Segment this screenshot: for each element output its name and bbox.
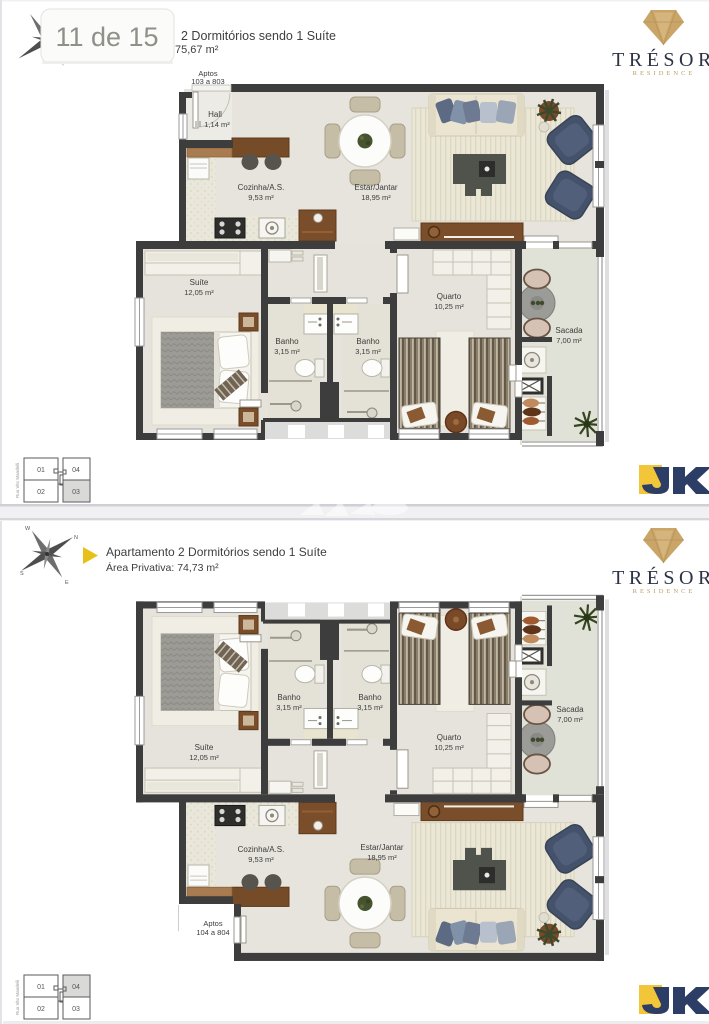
svg-text:Suíte: Suíte — [190, 278, 209, 287]
svg-text:Estar/Jantar: Estar/Jantar — [354, 183, 397, 192]
svg-text:TRÉSOR: TRÉSOR — [612, 48, 709, 71]
svg-text:Sacada: Sacada — [556, 705, 584, 714]
svg-text:Banho: Banho — [275, 337, 299, 346]
svg-text:Banho: Banho — [358, 693, 382, 702]
svg-text:3,15 m²: 3,15 m² — [276, 703, 302, 712]
svg-text:Suíte: Suíte — [195, 743, 214, 752]
svg-text:11 de 15: 11 de 15 — [55, 22, 158, 52]
svg-text:W: W — [25, 526, 31, 532]
svg-text:75,67 m²: 75,67 m² — [175, 44, 219, 56]
svg-text:03: 03 — [72, 489, 80, 496]
svg-text:9,53 m²: 9,53 m² — [248, 855, 274, 864]
svg-text:Área Privativa: 74,73 m²: Área Privativa: 74,73 m² — [106, 561, 219, 574]
svg-text:10,25 m²: 10,25 m² — [434, 302, 464, 311]
svg-text:02: 02 — [37, 1006, 45, 1013]
svg-text:10,25 m²: 10,25 m² — [434, 743, 464, 752]
svg-text:Rua Vito Mandelli: Rua Vito Mandelli — [15, 463, 20, 498]
svg-text:N: N — [74, 535, 78, 541]
svg-text:Estar/Jantar: Estar/Jantar — [360, 843, 403, 852]
svg-text:Rua Vito Mandelli: Rua Vito Mandelli — [15, 980, 20, 1015]
svg-text:7,00 m²: 7,00 m² — [557, 715, 583, 724]
svg-text:3,15 m²: 3,15 m² — [274, 347, 300, 356]
svg-text:S: S — [20, 571, 24, 577]
svg-text:7,00 m²: 7,00 m² — [556, 336, 582, 345]
svg-text:Cozinha/A.S.: Cozinha/A.S. — [238, 845, 285, 854]
svg-text:RESIDENCE: RESIDENCE — [633, 588, 696, 595]
svg-text:E: E — [65, 580, 69, 586]
svg-text:01: 01 — [37, 467, 45, 474]
svg-text:103 a 803: 103 a 803 — [191, 77, 224, 86]
svg-text:9,53 m²: 9,53 m² — [248, 193, 274, 202]
svg-text:03: 03 — [72, 1006, 80, 1013]
svg-text:Aptos: Aptos — [203, 919, 222, 928]
svg-text:12,05 m²: 12,05 m² — [184, 288, 214, 297]
svg-text:02: 02 — [37, 489, 45, 496]
svg-text:18,95 m²: 18,95 m² — [361, 193, 391, 202]
svg-text:Sacada: Sacada — [555, 326, 583, 335]
svg-text:Banho: Banho — [277, 693, 301, 702]
svg-text:01: 01 — [37, 984, 45, 991]
svg-text:Apartamento 2 Dormitórios sen: Apartamento 2 Dormitórios sendo 1 Suíte — [106, 545, 327, 559]
svg-text:TRÉSOR: TRÉSOR — [612, 566, 709, 589]
svg-text:104 a 804: 104 a 804 — [196, 928, 229, 937]
svg-text:Hall: Hall — [208, 110, 222, 119]
svg-text:3,15 m²: 3,15 m² — [357, 703, 383, 712]
svg-text:Cozinha/A.S.: Cozinha/A.S. — [238, 183, 285, 192]
svg-text:3,15 m²: 3,15 m² — [355, 347, 381, 356]
svg-text:2 Dormitórios sendo 1 Suíte: 2 Dormitórios sendo 1 Suíte — [181, 29, 336, 43]
svg-text:1,14 m²: 1,14 m² — [204, 120, 230, 129]
svg-text:18,95 m²: 18,95 m² — [367, 853, 397, 862]
svg-text:Banho: Banho — [356, 337, 380, 346]
svg-text:Quarto: Quarto — [437, 292, 462, 301]
svg-text:04: 04 — [72, 984, 80, 991]
svg-text:RESIDENCE: RESIDENCE — [633, 70, 696, 77]
svg-text:Quarto: Quarto — [437, 733, 462, 742]
svg-text:12,05 m²: 12,05 m² — [189, 753, 219, 762]
svg-text:04: 04 — [72, 467, 80, 474]
